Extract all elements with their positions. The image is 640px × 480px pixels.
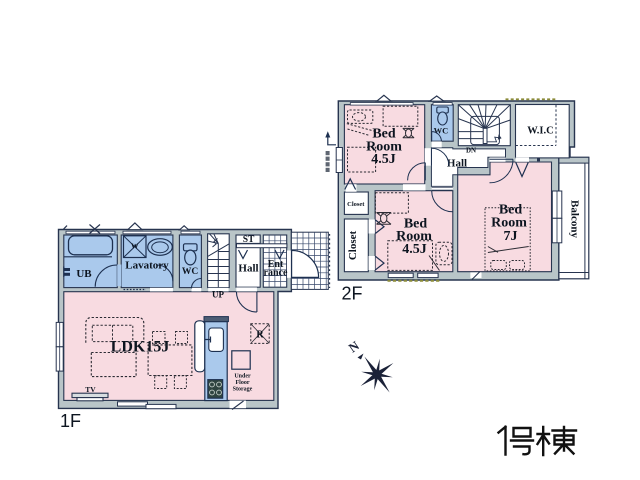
svg-text:WC: WC (182, 267, 199, 277)
svg-text:TV: TV (85, 385, 96, 394)
svg-text:Balcony: Balcony (569, 200, 581, 238)
svg-text:DN: DN (466, 147, 476, 155)
svg-text:WC: WC (434, 126, 449, 136)
svg-text:Lavatory: Lavatory (125, 260, 169, 272)
svg-text:Closet: Closet (347, 231, 359, 261)
svg-text:UP: UP (212, 290, 224, 300)
svg-text:R: R (256, 330, 264, 341)
svg-text:4.5J: 4.5J (402, 242, 427, 257)
svg-text:rance: rance (264, 267, 288, 278)
svg-text:W.I.C: W.I.C (527, 126, 553, 137)
svg-text:2F: 2F (342, 284, 363, 304)
svg-text:1F: 1F (60, 411, 81, 431)
svg-text:4.5J: 4.5J (371, 152, 396, 167)
svg-text:W: W (131, 242, 139, 251)
svg-text:Hall: Hall (238, 263, 258, 275)
svg-text:Floor: Floor (236, 380, 250, 386)
svg-text:Closet: Closet (347, 201, 365, 208)
svg-text:Under: Under (234, 374, 251, 380)
svg-text:LDK15J: LDK15J (111, 339, 170, 356)
svg-text:Hall: Hall (447, 158, 467, 170)
svg-text:UB: UB (76, 268, 92, 280)
svg-text:7J: 7J (504, 229, 518, 244)
svg-text:Storage: Storage (233, 387, 253, 393)
